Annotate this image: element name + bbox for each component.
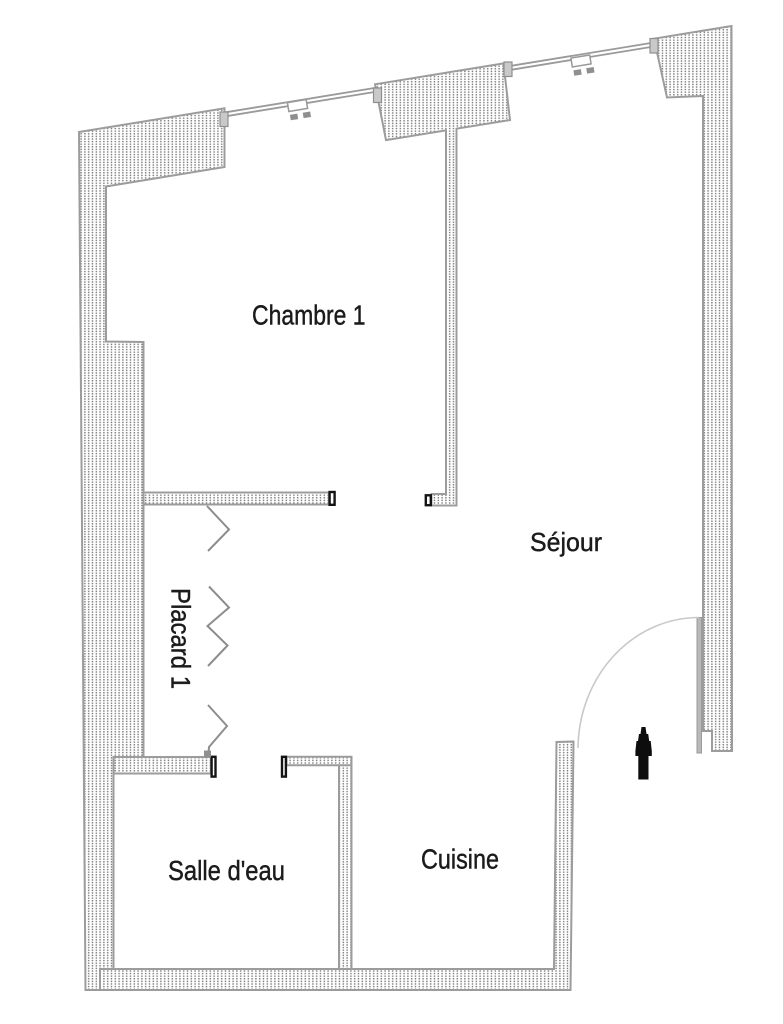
svg-text:Cuisine: Cuisine	[421, 844, 499, 875]
svg-text:Chambre 1: Chambre 1	[252, 300, 366, 331]
svg-text:Placard 1: Placard 1	[166, 588, 196, 689]
svg-text:Salle d'eau: Salle d'eau	[168, 855, 285, 886]
svg-text:Séjour: Séjour	[530, 527, 602, 557]
